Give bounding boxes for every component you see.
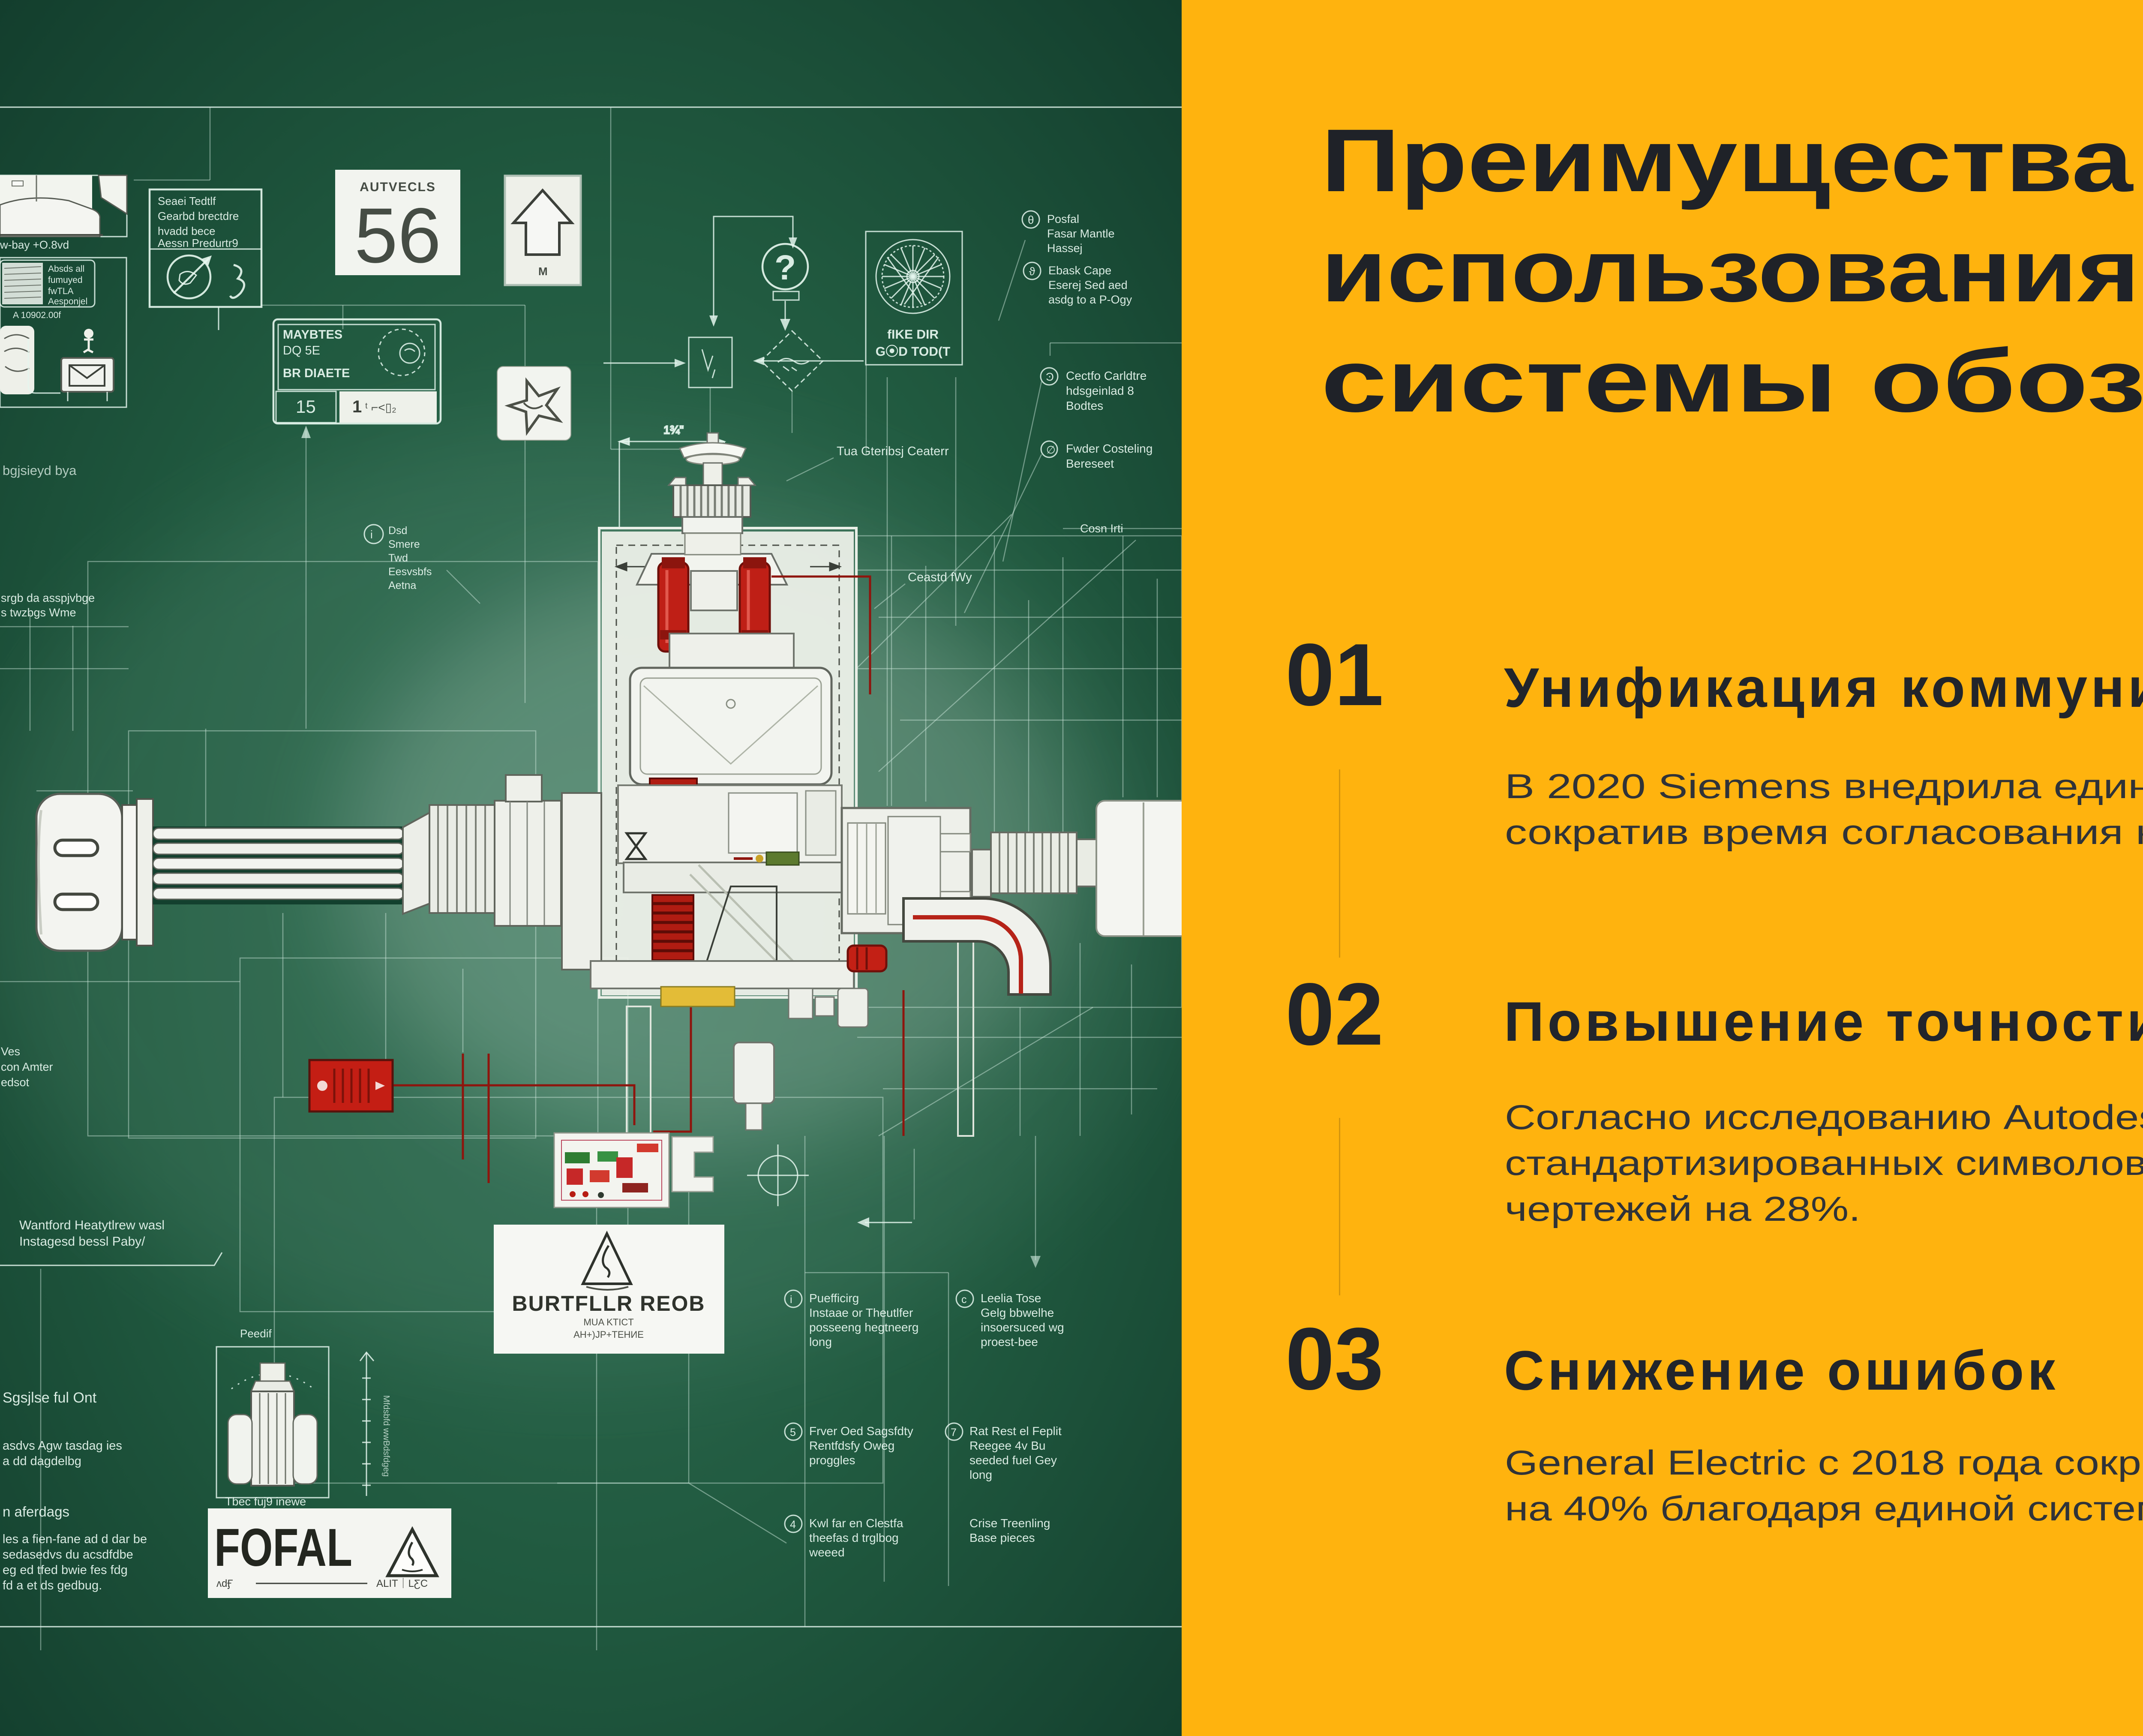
svg-text:1: 1 (352, 397, 362, 416)
svg-text:Leelia Tose: Leelia Tose (981, 1291, 1041, 1305)
svg-text:4: 4 (790, 1519, 796, 1531)
svg-text:∅: ∅ (1046, 444, 1056, 456)
svg-text:Bodtes: Bodtes (1066, 399, 1103, 412)
svg-text:Eserej Sed aed: Eserej Sed aed (1048, 279, 1128, 291)
svg-text:a dd dagdelbg: a dd dagdelbg (3, 1454, 81, 1468)
svg-text:BR DIAETE: BR DIAETE (283, 366, 350, 380)
svg-text:Kwl far en Clestfa: Kwl far en Clestfa (809, 1517, 903, 1530)
svg-text:ϑ: ϑ (1029, 265, 1035, 278)
svg-text:Crise Treenling: Crise Treenling (969, 1517, 1050, 1530)
svg-text:1¾": 1¾" (663, 423, 684, 436)
svg-text:MAYBTES: MAYBTES (283, 328, 342, 342)
svg-text:MUA KTICT: MUA KTICT (583, 1317, 633, 1328)
svg-text:DQ 5E: DQ 5E (283, 344, 320, 357)
svg-text:Gearbd brectdre: Gearbd brectdre (158, 210, 239, 222)
svg-text:5: 5 (790, 1427, 796, 1439)
svg-text:hvadd bece: hvadd bece (158, 225, 215, 237)
svg-text:theefas d trglbog: theefas d trglbog (809, 1531, 899, 1544)
svg-text:proggles: proggles (809, 1454, 855, 1467)
svg-text:?: ? (774, 248, 796, 287)
svg-text:ᵗ ⌐<▯₂: ᵗ ⌐<▯₂ (365, 401, 396, 414)
svg-text:Ebask Cape: Ebask Cape (1048, 264, 1111, 277)
svg-text:15: 15 (296, 396, 316, 417)
svg-text:Absds all: Absds all (48, 264, 84, 274)
svg-text:Puefficirg: Puefficirg (809, 1291, 859, 1305)
svg-text:θ: θ (1028, 213, 1034, 226)
svg-text:Instaae or Theutlfer: Instaae or Theutlfer (809, 1306, 913, 1319)
svg-text:Ves: Ves (1, 1045, 20, 1058)
svg-text:eg ed tfed bwie fes fdg: eg ed tfed bwie fes fdg (3, 1563, 128, 1577)
svg-text:Tua Gteribsj Ceaterr: Tua Gteribsj Ceaterr (837, 445, 949, 458)
svg-text:fd a et ds gedbug.: fd a et ds gedbug. (3, 1579, 102, 1592)
svg-text:56: 56 (354, 192, 441, 279)
svg-text:Ͽ: Ͽ (1046, 370, 1054, 383)
svg-text:posseeng hegtneerg: posseeng hegtneerg (809, 1321, 918, 1334)
svg-text:srgb da asspjvbge: srgb da asspjvbge (1, 592, 95, 604)
svg-text:Rat Rest el Feplit: Rat Rest el Feplit (969, 1424, 1062, 1438)
svg-text:les a fien-fane ad d dar be: les a fien-fane ad d dar be (3, 1532, 147, 1546)
svg-text:fumuyed: fumuyed (48, 275, 83, 285)
svg-text:Dsd: Dsd (388, 525, 407, 537)
svg-text:w-bay +O.8vd: w-bay +O.8vd (0, 238, 69, 251)
svg-text:Tbec fuj9 inewe: Tbec fuj9 inewe (225, 1495, 306, 1508)
svg-text:Aesponjel: Aesponjel (48, 297, 87, 306)
svg-text:fIKE DIR: fIKE DIR (887, 327, 939, 342)
svg-text:ʌdӺ: ʌdӺ (216, 1578, 233, 1589)
svg-text:fwTLA: fwTLA (48, 286, 74, 296)
svg-text:insoersuced wg: insoersuced wg (981, 1321, 1064, 1334)
svg-text:Ceastd fWy: Ceastd fWy (908, 571, 972, 584)
svg-text:Mfdsbfd wwBdsfdgeg: Mfdsbfd wwBdsfdgeg (381, 1395, 391, 1477)
svg-text:c: c (961, 1294, 967, 1306)
svg-text:con Amter: con Amter (1, 1060, 53, 1073)
svg-text:Frver Oed Sagsfdty: Frver Oed Sagsfdty (809, 1424, 913, 1438)
svg-text:sedasedvs du acsdfdbe: sedasedvs du acsdfdbe (3, 1548, 133, 1562)
svg-text:M: M (538, 265, 548, 278)
svg-text:long: long (809, 1335, 832, 1349)
svg-text:Aessn Predurtr9: Aessn Predurtr9 (158, 237, 238, 249)
svg-text:Eesvsbfs: Eesvsbfs (388, 566, 432, 578)
svg-text:Peedif: Peedif (240, 1327, 272, 1340)
svg-text:BURTFLLR REOB: BURTFLLR REOB (512, 1291, 705, 1316)
svg-text:Bereseet: Bereseet (1066, 457, 1114, 470)
svg-text:proest-bee: proest-bee (981, 1335, 1038, 1349)
svg-text:AH+)JP+TEHИE: AH+)JP+TEHИE (573, 1329, 644, 1340)
svg-text:A 10902.00f: A 10902.00f (13, 310, 61, 320)
svg-text:Base pieces: Base pieces (969, 1531, 1035, 1544)
svg-text:s twzbgs Wme: s twzbgs Wme (1, 606, 76, 619)
svg-text:Twd: Twd (388, 552, 408, 564)
svg-text:Sgsjlse ful Ont: Sgsjlse ful Ont (3, 1390, 97, 1406)
svg-text:7: 7 (951, 1427, 957, 1439)
svg-text:Wantford Heatytlrew wasl: Wantford Heatytlrew wasl (19, 1218, 165, 1232)
svg-text:n aferdags: n aferdags (3, 1504, 69, 1520)
svg-text:Fwder Costeling: Fwder Costeling (1066, 442, 1153, 455)
svg-text:Cectfo Carldtre: Cectfo Carldtre (1066, 369, 1147, 382)
svg-text:i: i (790, 1294, 792, 1306)
svg-text:G⦿D TOD(T: G⦿D TOD(T (876, 345, 950, 359)
svg-text:seeded fuel Gey: seeded fuel Gey (969, 1454, 1057, 1467)
svg-text:weeed: weeed (809, 1546, 845, 1559)
svg-text:ALIT｜LƸC: ALIT｜LƸC (376, 1578, 428, 1589)
svg-text:Hassej: Hassej (1047, 242, 1083, 255)
svg-text:Instagesd bessl Paby/: Instagesd bessl Paby/ (19, 1234, 145, 1249)
svg-text:long: long (969, 1468, 992, 1481)
svg-text:Seaei Tedtlf: Seaei Tedtlf (158, 195, 216, 207)
svg-text:Posfal: Posfal (1047, 213, 1079, 225)
svg-text:asdvs Agw tasdag ies: asdvs Agw tasdag ies (3, 1439, 122, 1453)
svg-text:Reegee 4v Bu: Reegee 4v Bu (969, 1439, 1045, 1452)
svg-text:bgjsieyd bya: bgjsieyd bya (3, 463, 77, 478)
svg-text:Rentfdsfy Oweg: Rentfdsfy Oweg (809, 1439, 894, 1452)
svg-text:Smere: Smere (388, 538, 420, 550)
svg-text:edsot: edsot (1, 1076, 30, 1089)
svg-text:FOFAL: FOFAL (214, 1518, 352, 1577)
svg-text:Fasar Mantle: Fasar Mantle (1047, 227, 1115, 240)
svg-text:Aetna: Aetna (388, 580, 416, 592)
svg-text:asdg to a P-Ogy: asdg to a P-Ogy (1048, 293, 1132, 306)
svg-text:i: i (370, 528, 373, 541)
svg-text:Gelg bbwelhe: Gelg bbwelhe (981, 1306, 1054, 1319)
svg-text:hdsgeinlad 8: hdsgeinlad 8 (1066, 384, 1134, 397)
